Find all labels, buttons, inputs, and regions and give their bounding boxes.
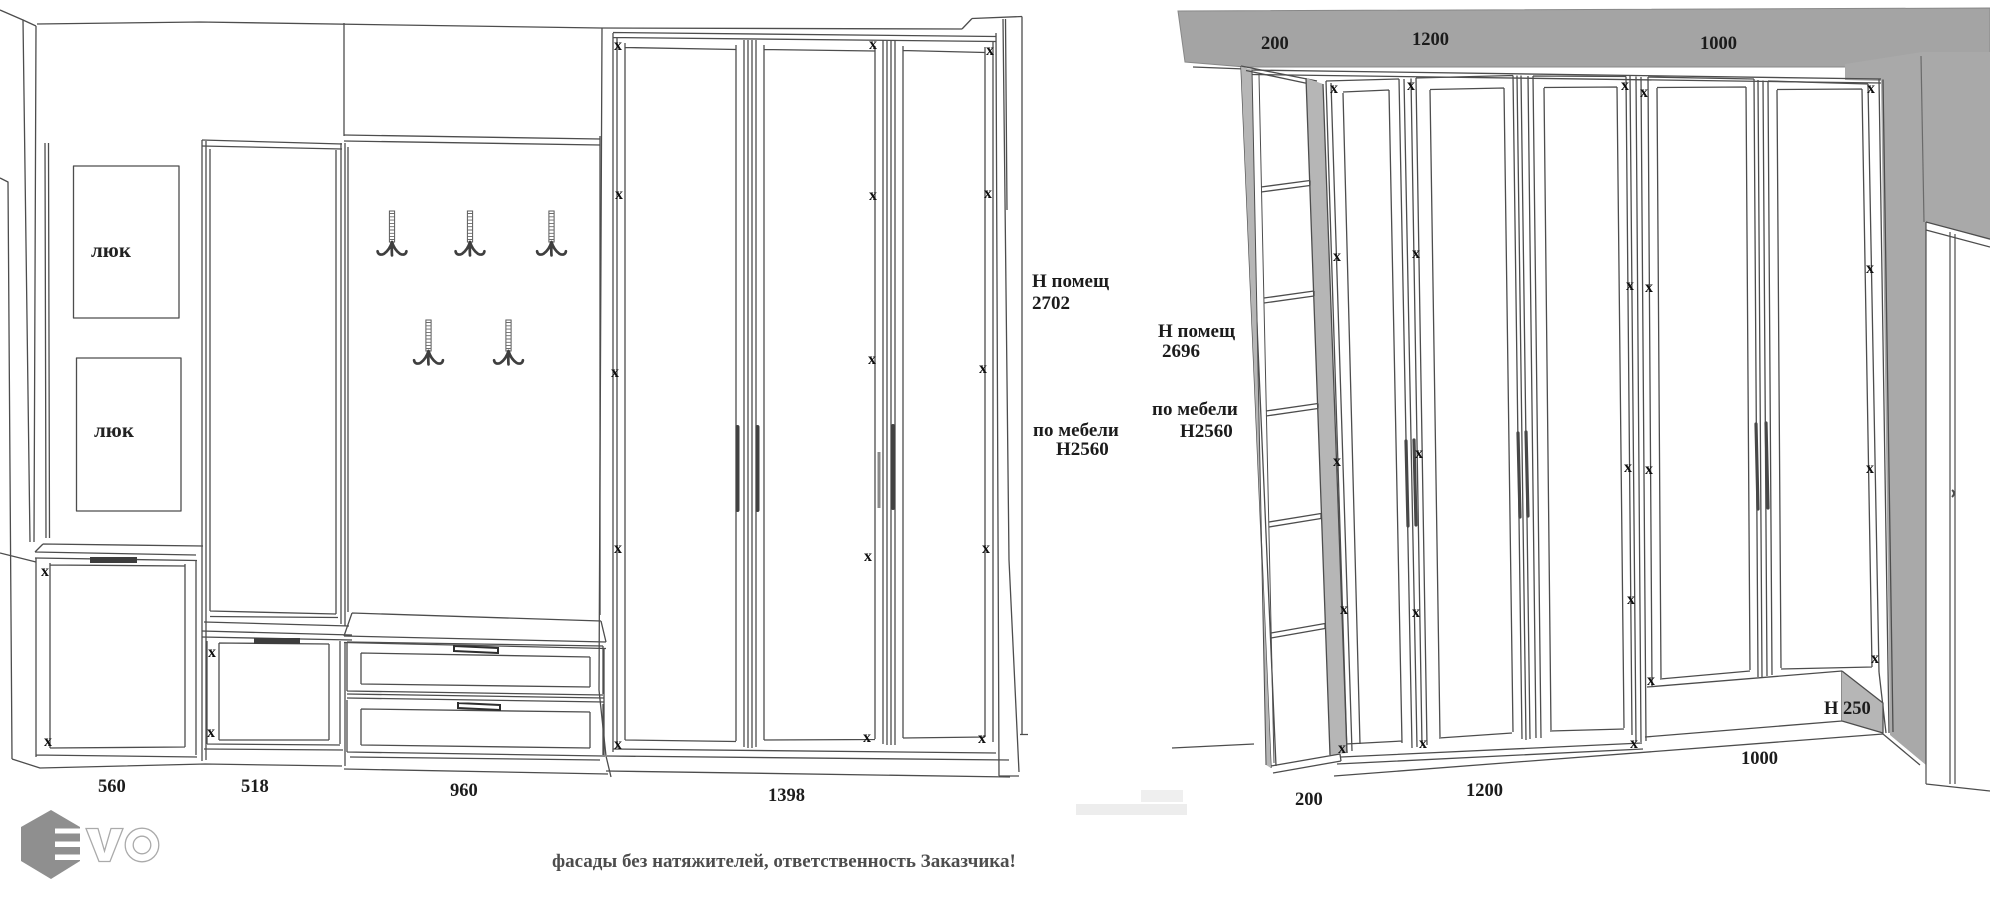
svg-text:x: x [1415,445,1423,462]
svg-text:Н помещ: Н помещ [1032,271,1109,292]
svg-text:люк: люк [94,418,135,442]
svg-text:x: x [868,351,876,368]
svg-text:x: x [869,36,877,53]
svg-text:x: x [1407,77,1415,94]
svg-text:1000: 1000 [1741,749,1778,769]
svg-text:200: 200 [1261,34,1289,54]
svg-text:x: x [614,37,622,54]
svg-text:x: x [1412,245,1420,262]
svg-text:x: x [1338,740,1346,757]
svg-text:960: 960 [450,781,478,801]
svg-text:x: x [1647,672,1655,689]
svg-text:x: x [1866,260,1874,277]
svg-text:Н2560: Н2560 [1056,439,1109,460]
svg-text:x: x [1412,604,1420,621]
svg-text:518: 518 [241,777,269,797]
svg-text:x: x [1630,735,1638,752]
svg-text:x: x [864,548,872,565]
svg-text:x: x [1626,277,1634,294]
svg-text:2696: 2696 [1162,341,1200,362]
svg-text:x: x [1645,279,1653,296]
svg-text:x: x [44,733,52,750]
svg-text:2702: 2702 [1032,293,1070,314]
svg-text:x: x [1871,650,1879,667]
svg-text:Н2560: Н2560 [1180,421,1233,442]
svg-text:по мебели: по мебели [1152,399,1238,420]
svg-text:x: x [1645,461,1653,478]
svg-text:x: x [611,364,619,381]
svg-text:x: x [1340,601,1348,618]
svg-text:1398: 1398 [768,786,805,806]
svg-text:x: x [1867,80,1875,97]
svg-text:x: x [984,185,992,202]
svg-text:x: x [982,540,990,557]
svg-text:x: x [615,186,623,203]
svg-text:560: 560 [98,777,126,797]
svg-text:x: x [1333,453,1341,470]
svg-text:x: x [1624,459,1632,476]
svg-text:x: x [979,360,987,377]
svg-text:1200: 1200 [1466,781,1503,801]
svg-text:x: x [1621,77,1629,94]
svg-text:Н помещ: Н помещ [1158,321,1235,342]
svg-text:фасады без натяжителей, ответс: фасады без натяжителей, ответственность … [552,851,1016,872]
svg-text:x: x [986,42,994,59]
svg-text:x: x [207,724,215,741]
svg-text:x: x [41,563,49,580]
svg-text:x: x [1627,591,1635,608]
svg-text:x: x [614,540,622,557]
svg-text:200: 200 [1295,790,1323,810]
svg-text:x: x [869,187,877,204]
svg-text:x: x [1640,84,1648,101]
svg-text:x: x [1419,735,1427,752]
svg-text:1200: 1200 [1412,30,1449,50]
svg-text:x: x [1330,80,1338,97]
svg-text:люк: люк [91,238,132,262]
svg-text:x: x [1866,460,1874,477]
svg-text:x: x [208,644,216,661]
svg-text:x: x [978,730,986,747]
svg-text:x: x [1333,248,1341,265]
svg-text:по мебели: по мебели [1033,420,1119,441]
svg-text:1000: 1000 [1700,34,1737,54]
svg-text:Н 250: Н 250 [1824,699,1871,719]
svg-text:x: x [614,736,622,753]
svg-text:x: x [863,729,871,746]
